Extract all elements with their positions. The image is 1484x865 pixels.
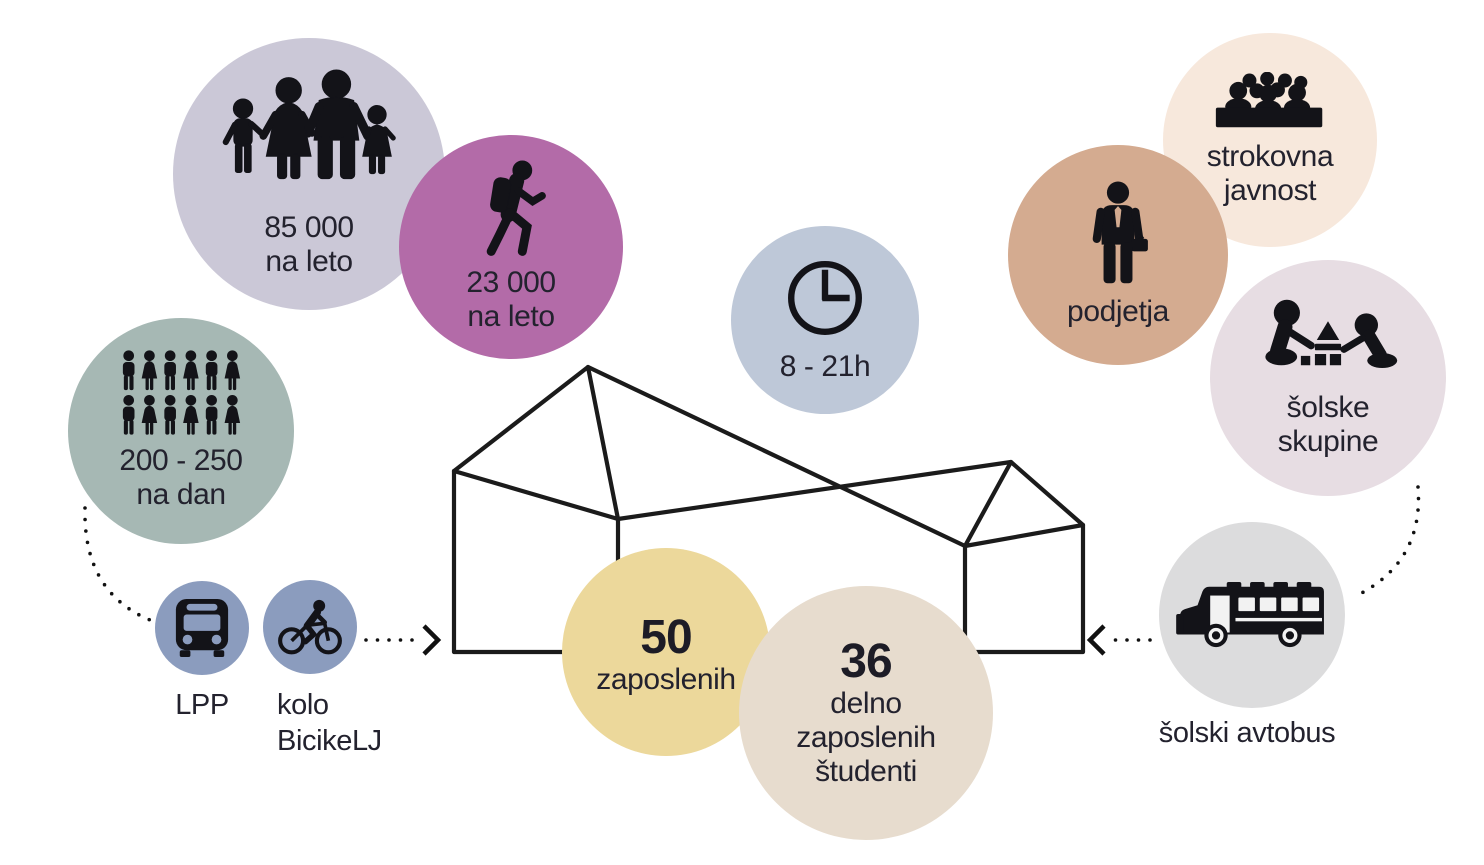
clock-icon <box>783 256 867 340</box>
building-outline <box>454 367 1083 652</box>
opening-hours-circle: 8 - 21h <box>731 226 919 414</box>
employees-label: zaposlenih <box>596 663 735 697</box>
businessman-icon <box>1086 181 1150 289</box>
student-workers-circle: 36 delno zaposlenih študenti <box>739 586 993 840</box>
hiker-icon <box>468 160 554 258</box>
student-workers-line2: zaposlenih <box>796 721 935 755</box>
daily-visitors-value: 200 - 250 <box>119 444 242 478</box>
daily-visitors-unit: na dan <box>136 478 225 512</box>
professional-public-line2: javnost <box>1224 174 1316 208</box>
city-bus-label: LPP <box>155 687 249 723</box>
bicycle-circle <box>263 580 357 674</box>
annual-hikers-unit: na leto <box>467 300 554 334</box>
city-bus-circle <box>155 581 249 675</box>
school-bus-icon <box>1174 580 1330 650</box>
companies-circle: podjetja <box>1008 145 1228 365</box>
bike-label: kolo BicikeLJ <box>277 687 382 759</box>
audience-icon <box>1214 72 1326 132</box>
employees-value: 50 <box>640 613 691 663</box>
school-bus-label: šolski avtobus <box>1136 715 1358 751</box>
bicycle-icon <box>276 598 344 656</box>
dotted-connector-groups-to-schoolbus <box>1356 487 1418 596</box>
annual-visitors-unit: na leto <box>265 245 352 279</box>
daily-visitors-circle: 200 - 250 na dan <box>68 318 294 544</box>
bike-label-line1: kolo <box>277 687 382 723</box>
bike-label-line2: BicikeLJ <box>277 723 382 759</box>
infographic-canvas: 85 000 na leto 23 000 na leto <box>0 0 1484 865</box>
student-workers-value: 36 <box>840 637 891 687</box>
children-blocks-icon <box>1252 297 1404 383</box>
school-bus-circle <box>1159 522 1345 708</box>
annual-hikers-value: 23 000 <box>466 266 555 300</box>
school-groups-circle: šolske skupine <box>1210 260 1446 496</box>
opening-hours-value: 8 - 21h <box>780 350 871 384</box>
professional-public-line1: strokovna <box>1207 140 1333 174</box>
student-workers-line1: delno <box>830 687 901 721</box>
arrowhead-into-building-left <box>424 626 438 654</box>
student-workers-line3: študenti <box>815 755 917 789</box>
companies-label: podjetja <box>1067 295 1169 329</box>
arrowhead-into-building-right <box>1090 626 1104 654</box>
people-grid-icon <box>119 350 243 436</box>
family-icon <box>215 69 403 203</box>
annual-visitors-value: 85 000 <box>264 211 353 245</box>
school-groups-line2: skupine <box>1278 425 1379 459</box>
annual-hikers-circle: 23 000 na leto <box>399 135 623 359</box>
city-bus-icon <box>173 598 231 658</box>
school-groups-line1: šolske <box>1287 391 1370 425</box>
